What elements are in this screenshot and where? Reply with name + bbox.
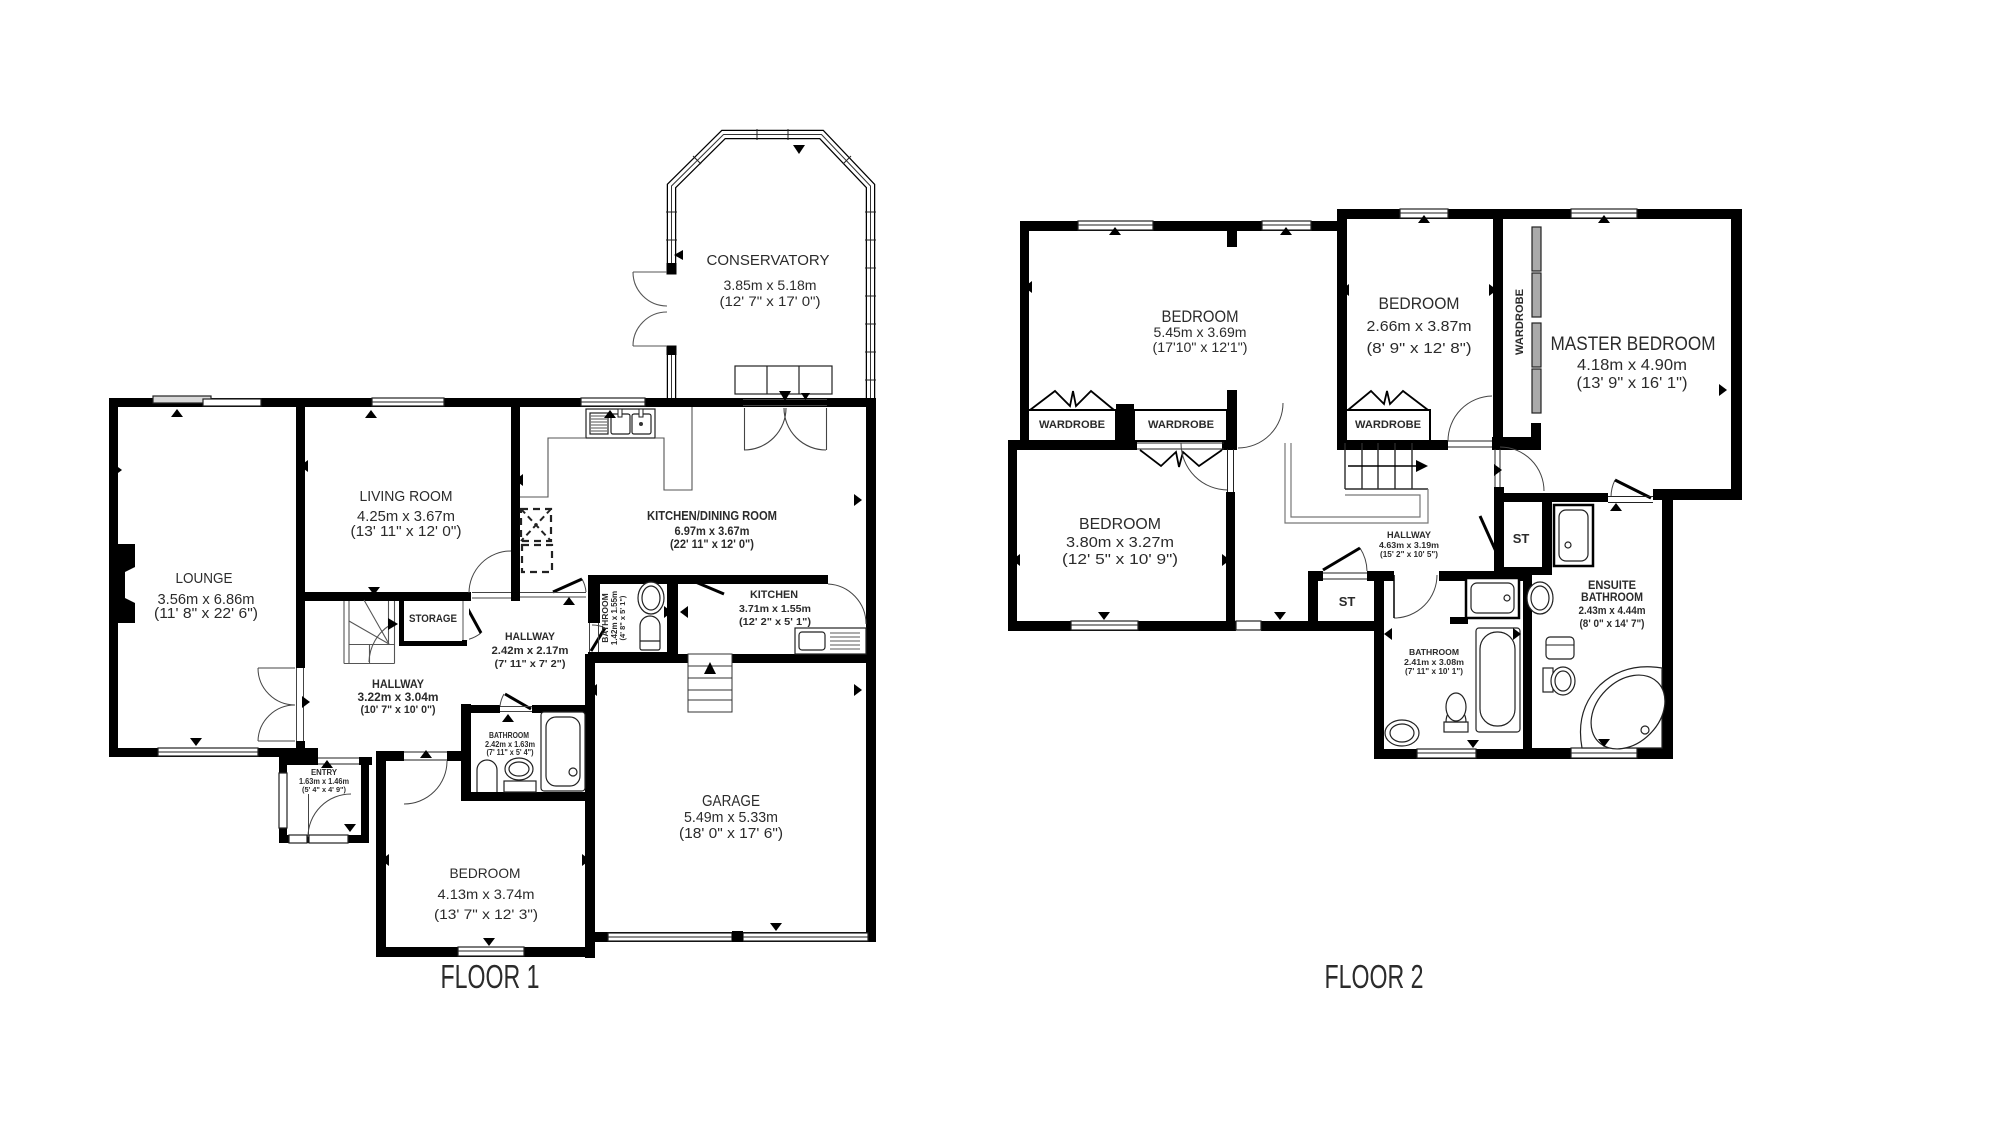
svg-text:(17'10" x 12'1"): (17'10" x 12'1") (1153, 339, 1248, 355)
svg-text:2.42m x 2.17m: 2.42m x 2.17m (492, 645, 569, 657)
svg-text:(15' 2" x 10' 5"): (15' 2" x 10' 5") (1380, 550, 1438, 559)
svg-text:(22' 11" x 12' 0"): (22' 11" x 12' 0") (670, 539, 754, 551)
svg-text:(5' 4" x 4' 9"): (5' 4" x 4' 9") (302, 785, 346, 794)
svg-text:(7' 11" x 7' 2"): (7' 11" x 7' 2") (495, 658, 566, 670)
svg-text:(13' 7" x 12' 3"): (13' 7" x 12' 3") (434, 906, 538, 922)
svg-text:(12' 2" x 5' 1"): (12' 2" x 5' 1") (739, 616, 811, 628)
svg-text:(8' 9" x 12' 8"): (8' 9" x 12' 8") (1367, 340, 1472, 357)
svg-text:WARDROBE: WARDROBE (1355, 419, 1421, 431)
svg-text:4.25m x 3.67m: 4.25m x 3.67m (357, 509, 455, 525)
svg-text:BATHROOM: BATHROOM (600, 593, 610, 642)
svg-text:FLOOR 1: FLOOR 1 (441, 958, 540, 995)
svg-text:5.49m x 5.33m: 5.49m x 5.33m (684, 810, 778, 826)
svg-text:(12' 7" x 17' 0"): (12' 7" x 17' 0") (720, 293, 821, 309)
svg-text:BEDROOM: BEDROOM (1379, 295, 1460, 313)
svg-text:(13' 9" x 16' 1"): (13' 9" x 16' 1") (1577, 375, 1688, 392)
svg-text:2.43m x 4.44m: 2.43m x 4.44m (1579, 605, 1646, 617)
svg-text:LOUNGE: LOUNGE (176, 570, 233, 587)
svg-text:5.45m x 3.69m: 5.45m x 3.69m (1154, 324, 1247, 340)
svg-text:ENTRY: ENTRY (311, 768, 338, 777)
svg-text:3.85m x 5.18m: 3.85m x 5.18m (724, 277, 817, 293)
svg-text:MASTER BEDROOM: MASTER BEDROOM (1551, 334, 1716, 355)
svg-text:STORAGE: STORAGE (409, 613, 457, 625)
svg-text:2.41m x 3.08m: 2.41m x 3.08m (1404, 657, 1464, 667)
svg-text:2.66m x 3.87m: 2.66m x 3.87m (1367, 318, 1472, 335)
svg-text:3.71m x 1.55m: 3.71m x 1.55m (739, 603, 811, 615)
svg-text:BEDROOM: BEDROOM (1079, 516, 1161, 533)
svg-text:FLOOR 2: FLOOR 2 (1325, 958, 1424, 995)
svg-text:BEDROOM: BEDROOM (450, 865, 521, 881)
svg-text:3.22m x 3.04m: 3.22m x 3.04m (358, 692, 439, 704)
svg-text:WARDROBE: WARDROBE (1039, 419, 1105, 431)
svg-text:HALLWAY: HALLWAY (505, 631, 556, 643)
svg-text:HALLWAY: HALLWAY (372, 679, 424, 691)
svg-text:KITCHEN/DINING ROOM: KITCHEN/DINING ROOM (647, 508, 777, 523)
svg-text:(10' 7" x 10' 0"): (10' 7" x 10' 0") (361, 704, 436, 716)
svg-text:(11' 8" x 22' 6"): (11' 8" x 22' 6") (154, 606, 258, 622)
svg-text:(8' 0" x 14' 7"): (8' 0" x 14' 7") (1580, 618, 1645, 630)
svg-text:HALLWAY: HALLWAY (1387, 530, 1431, 540)
svg-text:(7' 11" x 10' 1"): (7' 11" x 10' 1") (1405, 667, 1463, 676)
svg-text:4.13m x 3.74m: 4.13m x 3.74m (438, 886, 535, 902)
svg-text:(18' 0" x 17' 6"): (18' 0" x 17' 6") (679, 826, 783, 842)
svg-text:ST: ST (1339, 594, 1356, 609)
svg-text:GARAGE: GARAGE (702, 793, 760, 810)
svg-text:CONSERVATORY: CONSERVATORY (707, 252, 830, 269)
svg-text:BATHROOM: BATHROOM (1409, 647, 1459, 657)
svg-text:LIVING ROOM: LIVING ROOM (360, 488, 453, 505)
svg-text:(12' 5" x 10' 9"): (12' 5" x 10' 9") (1062, 552, 1178, 568)
svg-text:WARDROBE: WARDROBE (1148, 419, 1214, 431)
svg-text:BATHROOM: BATHROOM (1581, 592, 1643, 604)
svg-text:KITCHEN: KITCHEN (750, 589, 798, 601)
svg-text:4.63m x 3.19m: 4.63m x 3.19m (1379, 540, 1439, 550)
svg-text:WARDROBE: WARDROBE (1514, 289, 1526, 355)
svg-text:3.80m x 3.27m: 3.80m x 3.27m (1066, 534, 1174, 551)
svg-text:(13' 11" x 12' 0"): (13' 11" x 12' 0") (351, 524, 462, 540)
svg-text:(4' 8" x 5' 1"): (4' 8" x 5' 1") (618, 595, 627, 640)
svg-text:4.18m x 4.90m: 4.18m x 4.90m (1577, 357, 1687, 374)
svg-text:6.97m x 3.67m: 6.97m x 3.67m (675, 526, 750, 538)
svg-text:ENSUITE: ENSUITE (1588, 580, 1636, 592)
svg-text:(7' 11" x 5' 4"): (7' 11" x 5' 4") (487, 748, 534, 757)
svg-text:ST: ST (1513, 531, 1530, 546)
